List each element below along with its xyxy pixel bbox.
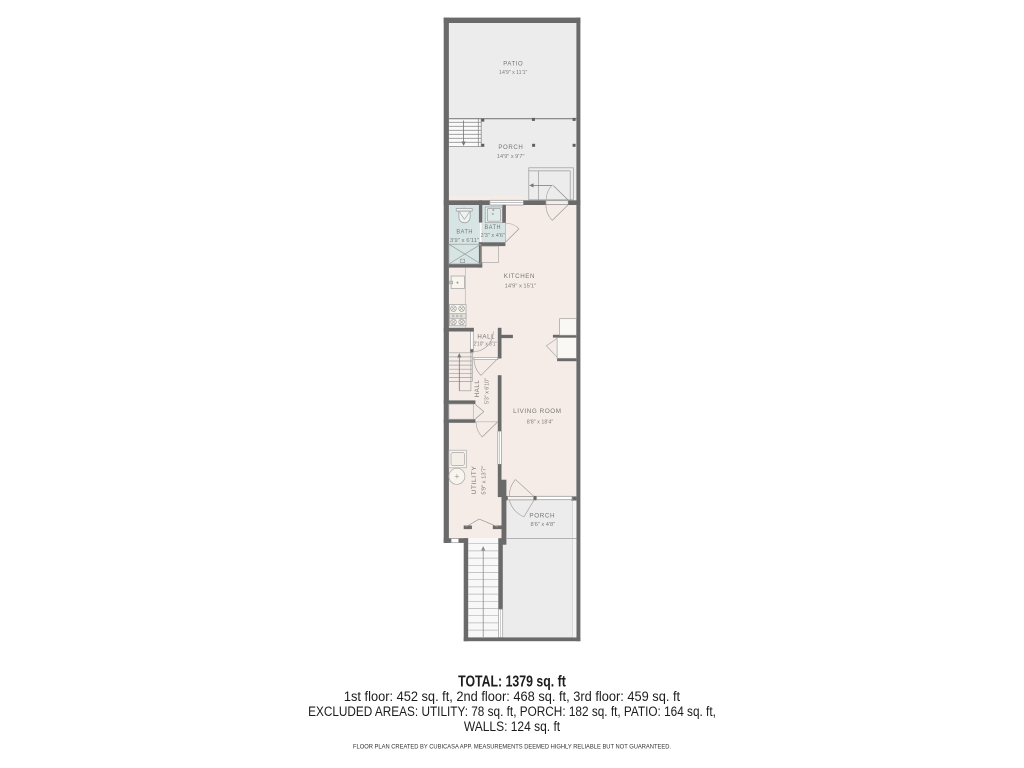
svg-text:HALL: HALL: [477, 333, 495, 340]
svg-text:LIVING ROOM: LIVING ROOM: [513, 408, 562, 415]
svg-text:PORCH: PORCH: [498, 144, 523, 151]
svg-text:14'9" x 11'1": 14'9" x 11'1": [499, 70, 527, 76]
svg-text:BATH: BATH: [485, 224, 502, 231]
svg-text:5'9" x 13'7": 5'9" x 13'7": [481, 466, 487, 495]
svg-text:TOTAL: 1379 sq. ft: TOTAL: 1379 sq. ft: [458, 674, 566, 691]
svg-text:WALLS: 124 sq. ft: WALLS: 124 sq. ft: [464, 719, 560, 735]
svg-text:KITCHEN: KITCHEN: [504, 273, 535, 280]
svg-text:2'3" x 4'6": 2'3" x 4'6": [481, 233, 505, 239]
svg-text:8'6" x 4'8": 8'6" x 4'8": [531, 522, 556, 528]
svg-text:FLOOR PLAN CREATED BY CUBICASA: FLOOR PLAN CREATED BY CUBICASA APP. MEAS…: [353, 743, 671, 750]
svg-text:EXCLUDED AREAS: UTILITY: 78 sq: EXCLUDED AREAS: UTILITY: 78 sq. ft, PORC…: [308, 704, 716, 720]
svg-text:2'10" x 3'1": 2'10" x 3'1": [473, 342, 497, 348]
svg-text:3'9" x 6'11": 3'9" x 6'11": [450, 238, 479, 244]
svg-text:PORCH: PORCH: [529, 513, 555, 520]
svg-text:8'8" x 18'4": 8'8" x 18'4": [527, 419, 554, 425]
svg-text:UTILITY: UTILITY: [471, 465, 478, 494]
svg-text:BATH: BATH: [456, 229, 473, 236]
svg-text:PATIO: PATIO: [503, 61, 523, 68]
svg-text:14'9" x 9'7": 14'9" x 9'7": [497, 154, 525, 160]
svg-text:HALL: HALL: [474, 380, 481, 398]
svg-text:14'9" x 15'1": 14'9" x 15'1": [505, 283, 537, 289]
svg-text:1st floor: 452 sq. ft, 2nd flo: 1st floor: 452 sq. ft, 2nd floor: 468 sq…: [344, 689, 680, 705]
svg-text:5'3" x 6'10": 5'3" x 6'10": [485, 378, 491, 404]
